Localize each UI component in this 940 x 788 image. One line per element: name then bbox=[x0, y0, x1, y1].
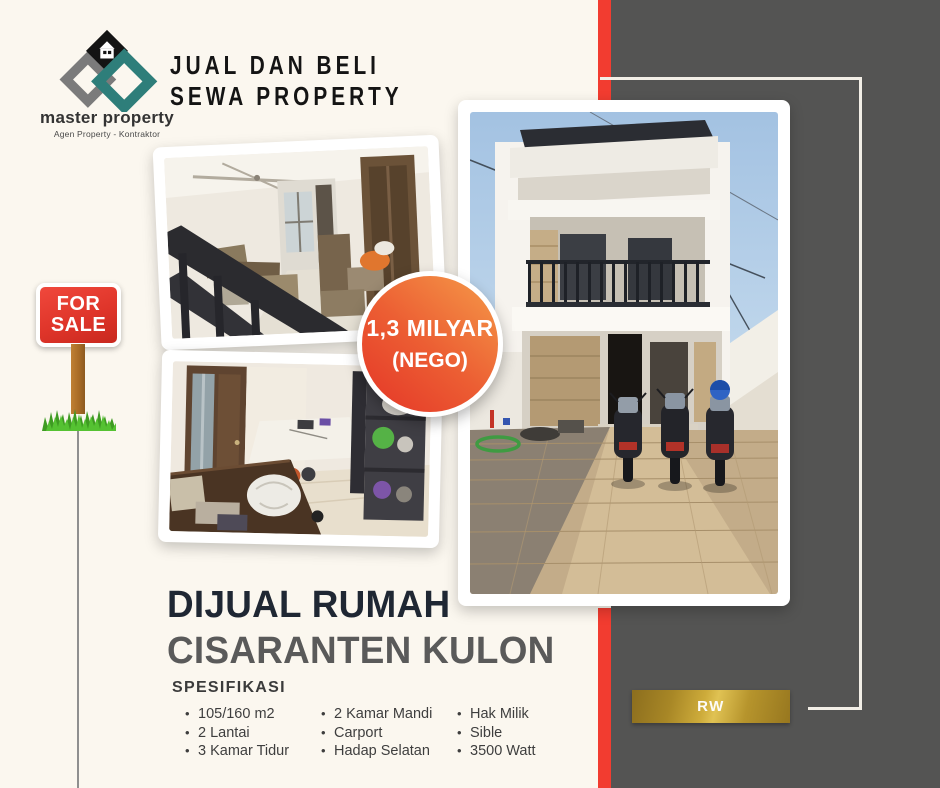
logo-tagline: Agen Property - Kontraktor bbox=[32, 129, 182, 139]
grass-icon bbox=[42, 405, 116, 431]
spec-item: •Hak Milik bbox=[457, 705, 587, 724]
spec-item: •105/160 m2 bbox=[185, 705, 321, 724]
price-note: (NEGO) bbox=[392, 349, 468, 373]
spec-item-label: 3500 Watt bbox=[470, 742, 536, 761]
spec-item-label: Hak Milik bbox=[470, 705, 529, 724]
for-sale-line-2: SALE bbox=[51, 315, 106, 336]
sign-guide-line bbox=[77, 429, 79, 788]
bullet-icon: • bbox=[457, 705, 470, 724]
decor-line-bottom bbox=[808, 707, 862, 710]
master-property-logo-icon bbox=[45, 26, 169, 112]
listing-location: CISARANTEN KULON bbox=[167, 630, 555, 673]
bullet-icon: • bbox=[185, 724, 198, 743]
logo-name: master property bbox=[32, 108, 182, 128]
heading-line-2: SEWA PROPERTY bbox=[170, 81, 403, 112]
spec-item: •2 Lantai bbox=[185, 724, 321, 743]
spec-list: •105/160 m2 •2 Lantai •3 Kamar Tidur •2 … bbox=[185, 705, 587, 761]
spec-column-3: •Hak Milik •Sible •3500 Watt bbox=[457, 705, 587, 761]
bullet-icon: • bbox=[185, 705, 198, 724]
red-accent-stripe-top bbox=[598, 0, 611, 103]
spec-item: •Carport bbox=[321, 724, 457, 743]
decor-line-top bbox=[600, 77, 862, 80]
spec-item-label: 105/160 m2 bbox=[198, 705, 275, 724]
listing-title: DIJUAL RUMAH bbox=[167, 584, 450, 627]
price-badge: 1,3 MILYAR (NEGO) bbox=[357, 271, 503, 417]
red-accent-stripe-bottom bbox=[598, 608, 611, 788]
rw-badge-label: RW bbox=[697, 698, 725, 715]
flyer-canvas: RW master property Agen Property - Kontr… bbox=[0, 0, 940, 788]
for-sale-line-1: FOR bbox=[57, 294, 101, 315]
spec-item-label: 2 Kamar Mandi bbox=[334, 705, 432, 724]
for-sale-sign-board: FOR SALE bbox=[36, 283, 121, 347]
heading-line-1: JUAL DAN BELI bbox=[170, 50, 403, 81]
bullet-icon: • bbox=[185, 742, 198, 761]
bullet-icon: • bbox=[457, 724, 470, 743]
spec-item: •2 Kamar Mandi bbox=[321, 705, 457, 724]
decor-line-vertical bbox=[859, 77, 862, 710]
bullet-icon: • bbox=[321, 705, 334, 724]
for-sale-sign-post bbox=[71, 344, 85, 414]
spec-item-label: 2 Lantai bbox=[198, 724, 250, 743]
brand-logo: master property Agen Property - Kontrakt… bbox=[32, 26, 182, 139]
spec-column-1: •105/160 m2 •2 Lantai •3 Kamar Tidur bbox=[185, 705, 321, 761]
exterior-photo-image bbox=[470, 112, 778, 594]
bullet-icon: • bbox=[457, 742, 470, 761]
spec-item-label: 3 Kamar Tidur bbox=[198, 742, 289, 761]
exterior-photo bbox=[458, 100, 790, 606]
spec-item: •3500 Watt bbox=[457, 742, 587, 761]
header-heading: JUAL DAN BELI SEWA PROPERTY bbox=[170, 50, 461, 112]
spec-item-label: Hadap Selatan bbox=[334, 742, 430, 761]
spec-heading: SPESIFIKASI bbox=[172, 679, 286, 697]
spec-column-2: •2 Kamar Mandi •Carport •Hadap Selatan bbox=[321, 705, 457, 761]
spec-item-label: Carport bbox=[334, 724, 382, 743]
spec-item-label: Sible bbox=[470, 724, 502, 743]
spec-item: •Sible bbox=[457, 724, 587, 743]
bullet-icon: • bbox=[321, 724, 334, 743]
spec-item: •3 Kamar Tidur bbox=[185, 742, 321, 761]
spec-item: •Hadap Selatan bbox=[321, 742, 457, 761]
price-amount: 1,3 MILYAR bbox=[366, 315, 493, 342]
rw-badge: RW bbox=[632, 690, 790, 723]
bullet-icon: • bbox=[321, 742, 334, 761]
